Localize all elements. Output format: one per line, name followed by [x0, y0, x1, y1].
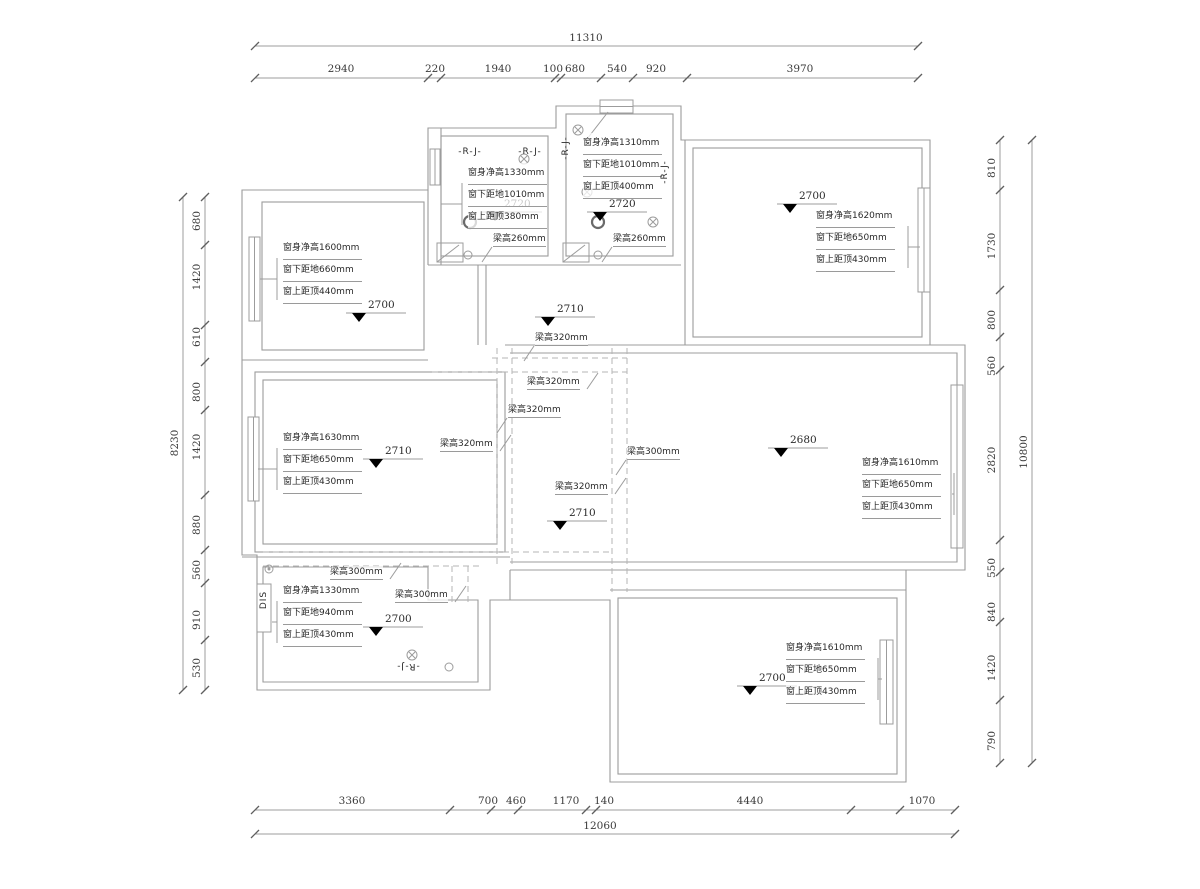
window-annotation-line: 窗身净高1610mm	[862, 453, 941, 475]
window-annotation: 窗身净高1330mm窗下距地940mm窗上距顶430mm	[283, 581, 362, 647]
dim-label: 540	[607, 63, 627, 75]
window-annotation-line: 窗下距地650mm	[816, 228, 895, 250]
window-living	[951, 385, 963, 548]
beam-label: 梁高300mm	[395, 589, 448, 603]
level-value: 2710	[569, 507, 596, 519]
window-annotation-line: 窗下距地650mm	[283, 450, 362, 472]
window-annotation-line: 窗上距顶430mm	[786, 682, 865, 704]
window-annotation-line: 窗身净高1310mm	[583, 133, 662, 155]
floor-drain-icon	[445, 663, 453, 671]
dim-label: 880	[191, 515, 203, 535]
dim-label: 1730	[986, 233, 998, 260]
beam-label: 梁高320mm	[440, 438, 493, 452]
rj-label: -R-J-	[518, 147, 541, 157]
window-annotation-line: 窗身净高1630mm	[283, 428, 362, 450]
level-marker-icon	[553, 521, 567, 530]
beam-label: 梁高320mm	[527, 376, 580, 390]
dim-label: 800	[191, 382, 203, 402]
level-marker-icon	[774, 448, 788, 457]
dim-label: 140	[594, 795, 614, 807]
dim-line	[587, 373, 598, 389]
dim-line	[616, 460, 626, 475]
level-value: 2700	[368, 299, 395, 311]
dim-label: 800	[986, 310, 998, 330]
window-annotation-line: 窗下距地1010mm	[468, 185, 547, 207]
window-bottomright	[880, 640, 893, 724]
level-marker-icon	[352, 313, 366, 322]
level-marker-icon	[369, 627, 383, 636]
window-topleft	[249, 237, 260, 321]
dim-label: 810	[986, 158, 998, 178]
level-marker-icon	[783, 204, 797, 213]
beam-label: 梁高320mm	[555, 481, 608, 495]
dim-label: 1420	[191, 434, 203, 461]
beam-label: 梁高320mm	[508, 404, 561, 418]
rj-label: -R-J-	[396, 661, 419, 671]
rj-label: -R-J-	[458, 147, 481, 157]
window-annotation: 窗身净高1620mm窗下距地650mm窗上距顶430mm	[816, 206, 895, 272]
dim-label: 610	[191, 327, 203, 347]
dim-label: 100	[543, 63, 563, 75]
level-value: 2700	[799, 190, 826, 202]
level-value: 2700	[385, 613, 412, 625]
dim-label: 3360	[339, 795, 366, 807]
window-topright	[918, 188, 930, 292]
showerhead-icon	[407, 650, 417, 660]
dim-label: 4440	[737, 795, 764, 807]
window-annotation-line: 窗上距顶430mm	[862, 497, 941, 519]
beam-label: 梁高300mm	[627, 446, 680, 460]
beam-dashed-horiz-2	[263, 552, 610, 566]
dim-total-label: 10800	[1018, 435, 1030, 468]
level-marker-icon	[369, 459, 383, 468]
beam-label: 梁高260mm	[613, 233, 666, 247]
dim-label: 220	[425, 63, 445, 75]
dim-label: 1940	[485, 63, 512, 75]
window-annotation-line: 窗上距顶430mm	[283, 625, 362, 647]
dim-label: 560	[986, 356, 998, 376]
window-annotation-line: 窗上距顶380mm	[468, 207, 547, 229]
level-marker-icon	[743, 686, 757, 695]
level-marker-icon	[541, 317, 555, 326]
window-annotation-line: 窗身净高1600mm	[283, 238, 362, 260]
beam-dashed-horiz-1	[432, 358, 627, 372]
dim-label: 1170	[553, 795, 580, 807]
dim-label: 1420	[986, 655, 998, 682]
beam-dashed-short	[452, 566, 468, 605]
window-annotation: 窗身净高1610mm窗下距地650mm窗上距顶430mm	[786, 638, 865, 704]
window-annotation: 窗身净高1310mm窗下距地1010mm窗上距顶400mm	[583, 133, 662, 199]
level-value: 2720	[609, 198, 636, 210]
showerhead-icon	[573, 125, 583, 135]
dim-label: 910	[191, 610, 203, 630]
window-annotation: 窗身净高1600mm窗下距地660mm窗上距顶440mm	[283, 238, 362, 304]
dim-label: 2940	[328, 63, 355, 75]
window-annotation-line: 窗上距顶440mm	[283, 282, 362, 304]
window-annotation: 窗身净高1630mm窗下距地650mm窗上距顶430mm	[283, 428, 362, 494]
dim-total-label: 12060	[583, 820, 616, 832]
floorplan-drawing: 2940220194010068054092039701131033607004…	[0, 0, 1200, 889]
window-midleft	[248, 417, 259, 501]
window-bath1	[430, 149, 440, 185]
dim-label: 840	[986, 602, 998, 622]
dis-label: DIS	[259, 591, 269, 609]
dim-label: 530	[191, 658, 203, 678]
shower-tray-icon	[563, 243, 589, 262]
dim-label: 1070	[909, 795, 936, 807]
dim-label: 920	[646, 63, 666, 75]
rj-label: -R-J-	[660, 160, 670, 183]
window-annotation-line: 窗上距顶430mm	[283, 472, 362, 494]
beam-label: 梁高300mm	[330, 566, 383, 580]
window-annotation: 窗身净高1330mm窗下距地1010mm窗上距顶380mm	[468, 163, 547, 229]
window-annotation-line: 窗下距地1010mm	[583, 155, 662, 177]
beam-label: 梁高260mm	[493, 233, 546, 247]
dim-label: 680	[565, 63, 585, 75]
window-annotation-line: 窗下距地940mm	[283, 603, 362, 625]
dim-line	[482, 247, 492, 262]
window-annotation-line: 窗身净高1610mm	[786, 638, 865, 660]
window-annotation-line: 窗身净高1330mm	[468, 163, 547, 185]
window-annotation-line: 窗下距地650mm	[862, 475, 941, 497]
level-value: 2680	[790, 434, 817, 446]
dim-total-label: 8230	[169, 430, 181, 457]
living-bottom-wall	[510, 570, 906, 600]
dim-line	[615, 478, 626, 494]
dim-label: 460	[506, 795, 526, 807]
window-annotation-line: 窗下距地660mm	[283, 260, 362, 282]
window-annotation-line: 窗上距顶430mm	[816, 250, 895, 272]
window-annotation: 窗身净高1610mm窗下距地650mm窗上距顶430mm	[862, 453, 941, 519]
window-annotation-line: 窗身净高1620mm	[816, 206, 895, 228]
dim-label: 680	[191, 211, 203, 231]
dim-label: 560	[191, 560, 203, 580]
dim-total-label: 11310	[569, 32, 602, 44]
showerhead-icon	[648, 217, 658, 227]
dim-label: 550	[986, 558, 998, 578]
window-annotation-line: 窗下距地650mm	[786, 660, 865, 682]
dim-label: 2820	[986, 447, 998, 474]
level-value: 2710	[385, 445, 412, 457]
dim-label: 1420	[191, 264, 203, 291]
dim-label: 700	[478, 795, 498, 807]
window-annotation-line: 窗身净高1330mm	[283, 581, 362, 603]
floor-drain-icon	[594, 251, 602, 259]
beam-label: 梁高320mm	[535, 332, 588, 346]
dim-label: 790	[986, 731, 998, 751]
level-value: 2710	[557, 303, 584, 315]
window-annotation-line: 窗上距顶400mm	[583, 177, 662, 199]
window-bath2-top	[600, 100, 633, 113]
floor-drain-icon	[464, 251, 472, 259]
dim-label: 3970	[787, 63, 814, 75]
level-value: 2700	[759, 672, 786, 684]
rj-label: -R-J-	[561, 136, 571, 159]
dim-line	[602, 247, 612, 262]
dim-line	[390, 563, 401, 579]
